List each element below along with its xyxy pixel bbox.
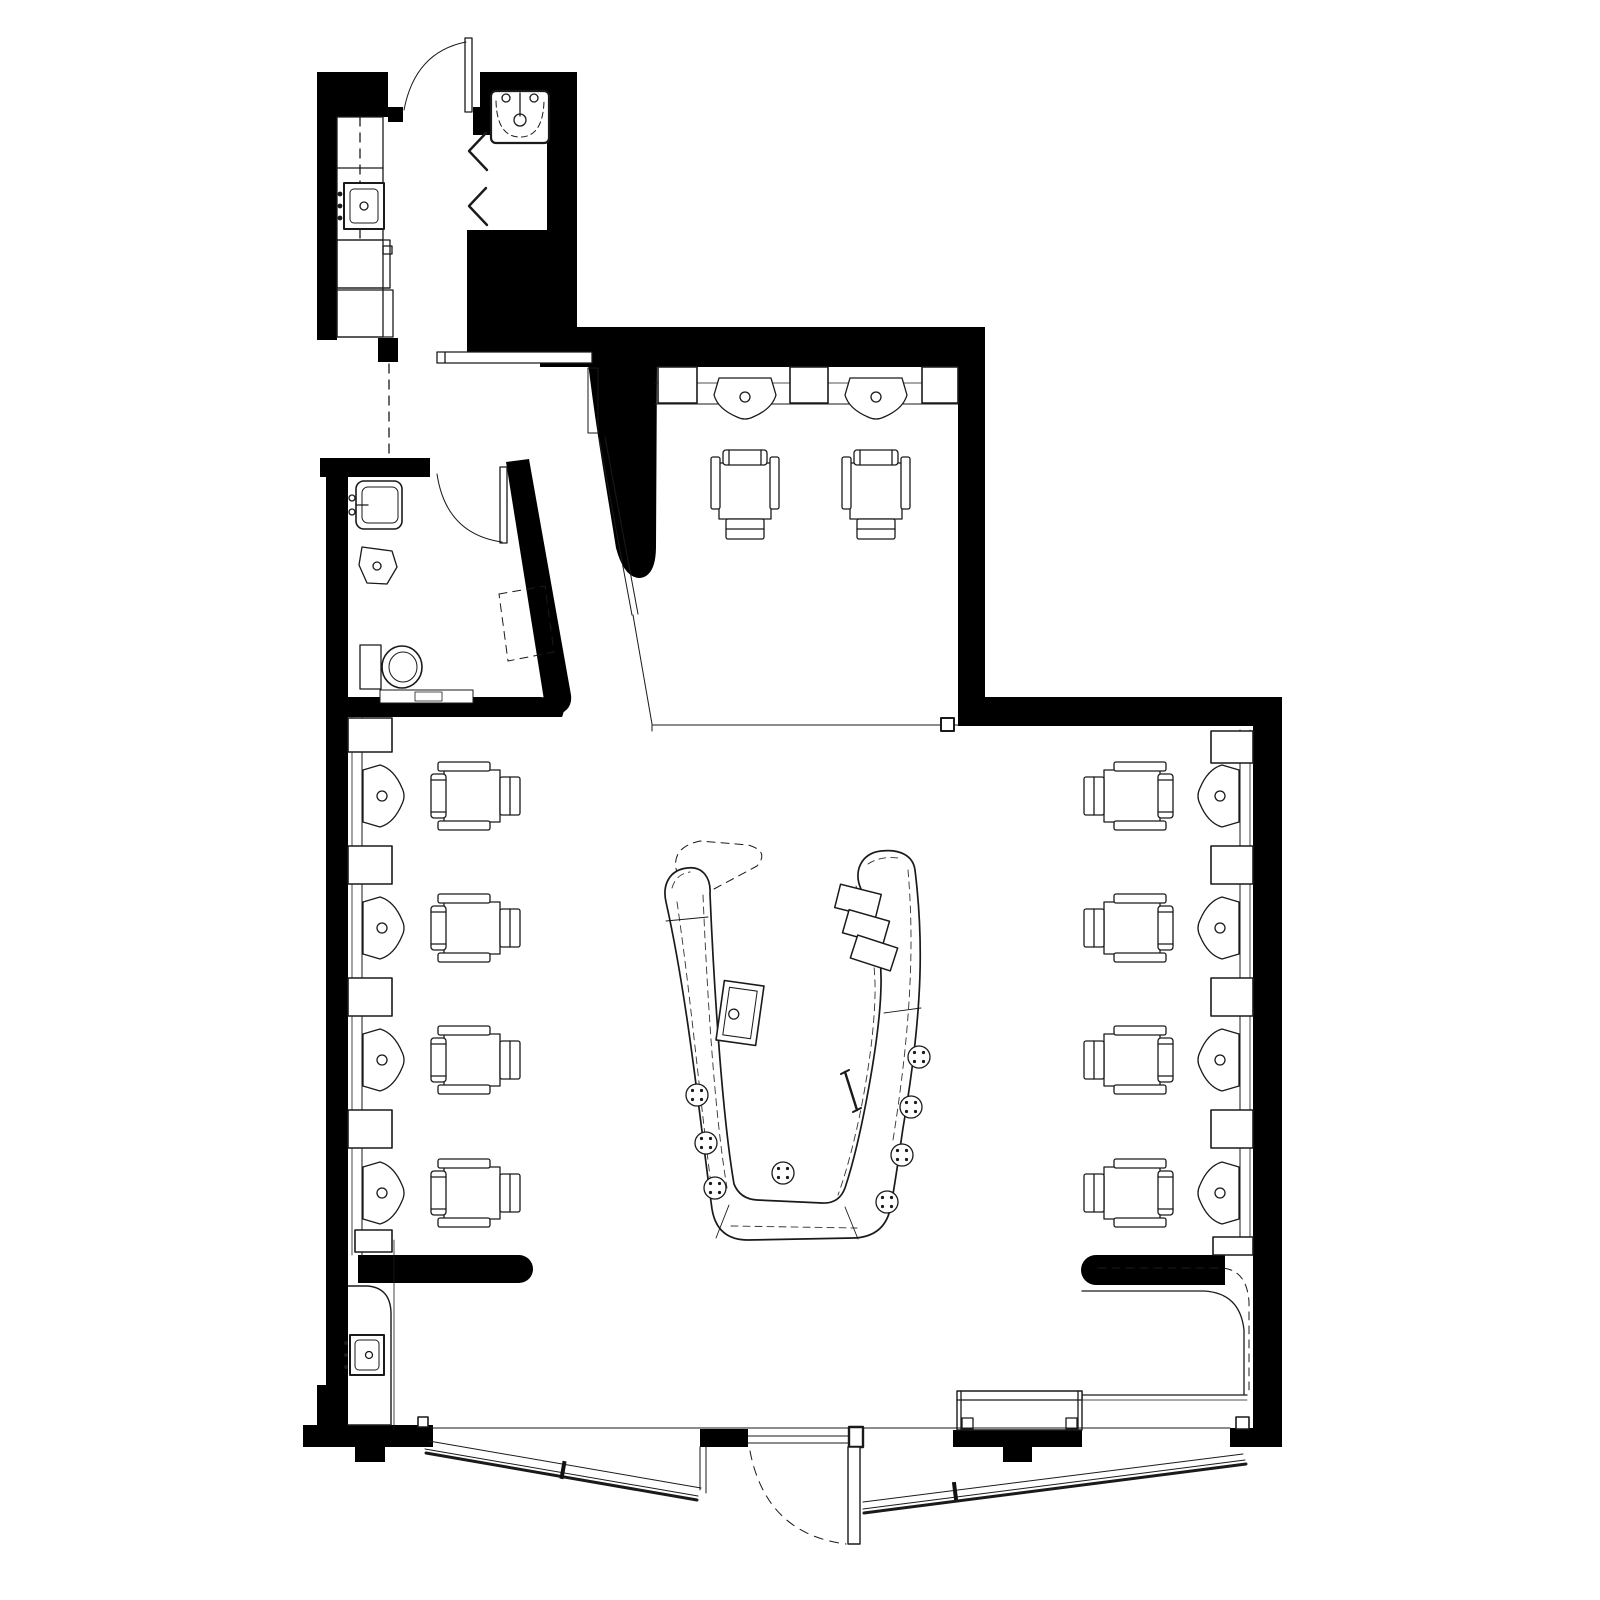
corner-counter-dashed bbox=[1098, 1268, 1249, 1394]
station-cabinet bbox=[355, 1230, 392, 1252]
wall-left bbox=[326, 458, 348, 1428]
station-cabinet bbox=[1211, 846, 1253, 884]
station-cabinet bbox=[348, 718, 392, 752]
stool bbox=[695, 1132, 717, 1154]
floor-plan-drawing bbox=[0, 0, 1600, 1600]
styling-chair bbox=[1084, 762, 1173, 830]
floor-plan-page bbox=[0, 0, 1600, 1600]
wall-stub-right-rounded bbox=[1081, 1255, 1225, 1285]
hall-boundary bbox=[633, 615, 652, 724]
wall-bottomleft-block bbox=[303, 1425, 433, 1447]
wall-entry-pier bbox=[700, 1429, 748, 1447]
wall-bottomleft-foot bbox=[355, 1447, 385, 1462]
storefront bbox=[418, 1417, 1249, 1544]
entry-door-swing-dashed bbox=[750, 1451, 846, 1544]
washroom-door-leaf bbox=[465, 38, 472, 112]
shampoo-bowl bbox=[845, 378, 907, 419]
corner-glazing-box bbox=[1236, 1417, 1249, 1429]
stool bbox=[686, 1084, 708, 1106]
entry-door-leaf bbox=[848, 1447, 860, 1544]
service-rail bbox=[841, 1070, 861, 1112]
pass-through-counter bbox=[437, 352, 592, 363]
station-cabinet bbox=[1213, 1237, 1253, 1255]
floor-junction-box bbox=[941, 718, 954, 731]
stool bbox=[876, 1191, 898, 1213]
wall-bench-pier bbox=[953, 1430, 1082, 1447]
styling-chair bbox=[431, 1026, 520, 1094]
stool bbox=[704, 1177, 726, 1199]
wall-stub-left-rounded bbox=[358, 1255, 533, 1283]
corner-basin bbox=[359, 547, 397, 584]
shampoo-bowl bbox=[1198, 765, 1239, 827]
styling-chair bbox=[431, 762, 520, 830]
wall-right-horizontal bbox=[958, 697, 1282, 726]
styling-chair bbox=[1084, 1159, 1173, 1227]
wall-right-corner-stub bbox=[1230, 1428, 1253, 1447]
stool bbox=[891, 1144, 913, 1166]
station-cabinet bbox=[348, 1110, 392, 1148]
kitchen-sink bbox=[338, 183, 384, 229]
shampoo-bowl bbox=[1198, 1162, 1239, 1224]
styling-chair bbox=[1084, 894, 1173, 962]
wall-hook-icon bbox=[469, 133, 487, 170]
styling-chair bbox=[1084, 1026, 1173, 1094]
styling-chair bbox=[842, 450, 910, 539]
styling-chair bbox=[431, 894, 520, 962]
station-cabinet bbox=[348, 978, 392, 1016]
salon-left-stations bbox=[348, 717, 520, 1255]
stool bbox=[772, 1162, 794, 1184]
window-bench bbox=[957, 1391, 1082, 1430]
restroom-sink bbox=[349, 481, 402, 529]
shampoo-bowl bbox=[1198, 1029, 1239, 1091]
entry-door-frame bbox=[849, 1427, 863, 1447]
wall-niche bbox=[658, 367, 697, 403]
wall-right bbox=[1253, 697, 1282, 1447]
wall-niche bbox=[790, 367, 828, 403]
glazing-start-box bbox=[418, 1417, 428, 1427]
station-cabinet bbox=[1211, 978, 1253, 1016]
wall-left-lower bbox=[317, 1385, 348, 1428]
shampoo-bowl bbox=[363, 765, 404, 827]
wall-niche bbox=[922, 367, 958, 403]
restroom-door-swing bbox=[437, 474, 502, 542]
stool bbox=[908, 1046, 930, 1068]
salon-right-stations bbox=[1084, 730, 1253, 1255]
nook-sink bbox=[344, 1335, 384, 1375]
treatment-room bbox=[655, 367, 958, 539]
station-cabinet bbox=[348, 846, 392, 884]
shampoo-bowl bbox=[714, 378, 776, 419]
stool bbox=[900, 1096, 922, 1118]
island-bar bbox=[665, 841, 930, 1240]
island-sink bbox=[716, 981, 764, 1046]
corner-counter bbox=[1082, 1268, 1249, 1400]
shampoo-bowl bbox=[1198, 897, 1239, 959]
wall-top-band bbox=[540, 327, 985, 367]
restroom-door-leaf bbox=[500, 467, 507, 543]
shampoo-bowl bbox=[363, 1162, 404, 1224]
wall-restroom-diagonal bbox=[506, 459, 571, 716]
shampoo-bowl bbox=[363, 897, 404, 959]
washroom-door-swing bbox=[404, 42, 466, 110]
styling-chair bbox=[711, 450, 779, 539]
wall-bench-pier-foot bbox=[1003, 1447, 1032, 1462]
washroom-sink bbox=[491, 91, 549, 143]
styling-chair bbox=[431, 1159, 520, 1227]
toilet bbox=[360, 645, 422, 689]
glazing-right-run bbox=[863, 1454, 1246, 1513]
station-cabinet bbox=[1211, 731, 1253, 763]
wall-treatment-right bbox=[958, 330, 985, 700]
shampoo-bowl bbox=[363, 1029, 404, 1091]
wall-hook-icon bbox=[469, 188, 487, 225]
station-cabinet bbox=[1211, 1110, 1253, 1148]
